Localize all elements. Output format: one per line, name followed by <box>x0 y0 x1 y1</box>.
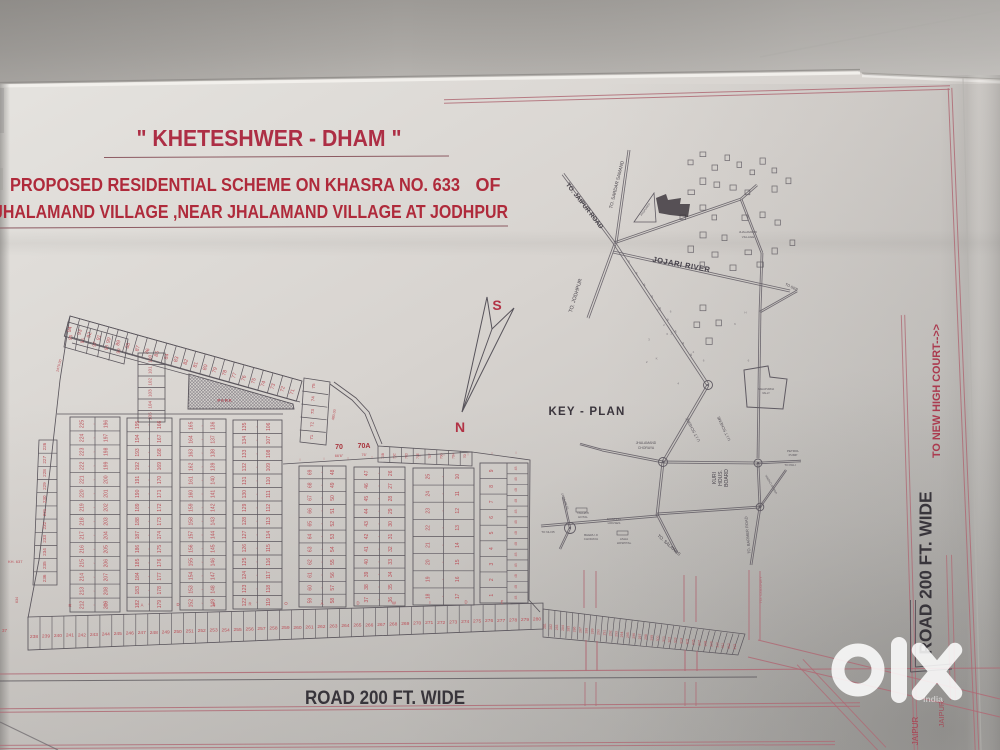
svg-text:230: 230 <box>42 495 47 503</box>
svg-text:27: 27 <box>388 483 394 489</box>
svg-text:295: 295 <box>626 632 630 638</box>
svg-text:60: 60 <box>308 585 314 591</box>
svg-text:16: 16 <box>455 576 461 582</box>
svg-text:18: 18 <box>426 593 432 599</box>
svg-text:282: 282 <box>549 624 553 630</box>
svg-text:119: 119 <box>266 598 272 606</box>
svg-text:301: 301 <box>662 636 666 642</box>
svg-text:PROPOSED RESIDENTIAL SCHEME ON: PROPOSED RESIDENTIAL SCHEME ON KHASRA NO… <box>10 175 460 195</box>
svg-text:256: 256 <box>246 627 254 633</box>
svg-text:286: 286 <box>573 626 577 632</box>
svg-text:" KHETESHWER - DHAM ": " KHETESHWER - DHAM " <box>137 125 402 151</box>
svg-text:JAIPUR: JAIPUR <box>911 717 920 746</box>
svg-text:70I: 70I <box>463 454 467 459</box>
svg-text:140: 140 <box>211 476 217 485</box>
svg-text:213: 213 <box>80 587 86 596</box>
svg-text:156: 156 <box>188 544 194 553</box>
svg-text:246: 246 <box>126 631 134 637</box>
svg-text:231: 231 <box>42 508 47 516</box>
svg-text:222: 222 <box>80 461 86 470</box>
svg-text:296: 296 <box>632 633 636 639</box>
svg-text:232: 232 <box>42 521 47 529</box>
svg-text:179: 179 <box>157 600 163 609</box>
svg-text:224: 224 <box>80 434 86 443</box>
svg-text:264: 264 <box>341 623 349 629</box>
svg-text:200: 200 <box>104 475 110 484</box>
svg-text:173: 173 <box>157 517 163 526</box>
svg-text:HOSPITAL: HOSPITAL <box>617 541 632 545</box>
svg-text:276: 276 <box>485 618 493 624</box>
svg-text:122: 122 <box>242 598 248 607</box>
svg-text:310: 310 <box>715 642 719 648</box>
svg-text:634: 634 <box>15 597 19 603</box>
svg-text:266: 266 <box>365 622 373 628</box>
svg-text:188: 188 <box>135 517 141 526</box>
svg-text:303: 303 <box>674 637 678 643</box>
svg-text:41: 41 <box>364 546 370 552</box>
svg-text:74: 74 <box>311 396 316 402</box>
svg-text:308: 308 <box>703 641 707 647</box>
svg-text:162: 162 <box>188 462 194 471</box>
svg-text:131: 131 <box>242 476 248 485</box>
svg-text:274: 274 <box>461 619 469 625</box>
svg-text:70F: 70F <box>428 453 432 459</box>
svg-text:TO PALI: TO PALI <box>784 463 795 467</box>
svg-text:48: 48 <box>330 469 336 475</box>
svg-text:76': 76' <box>362 453 367 457</box>
svg-text:64: 64 <box>308 534 314 540</box>
svg-text:248: 248 <box>150 630 158 636</box>
svg-text:4B: 4B <box>514 563 518 567</box>
svg-text:5: 5 <box>489 531 495 534</box>
svg-text:165: 165 <box>188 421 194 430</box>
svg-text:270: 270 <box>413 621 421 627</box>
svg-text:129: 129 <box>242 503 248 512</box>
svg-text:23: 23 <box>426 508 432 514</box>
svg-text:305: 305 <box>686 639 690 645</box>
svg-text:11: 11 <box>455 491 461 496</box>
svg-text:KH. 637: KH. 637 <box>8 559 23 564</box>
svg-text:59: 59 <box>308 598 314 604</box>
svg-text:50: 50 <box>330 495 336 501</box>
svg-text:68: 68 <box>308 482 314 488</box>
svg-text:227: 227 <box>42 456 47 464</box>
svg-text:236: 236 <box>42 574 47 582</box>
svg-text:13: 13 <box>455 525 461 531</box>
svg-text:S: S <box>492 297 501 313</box>
svg-text:166: 166 <box>157 421 163 430</box>
svg-text:A: A <box>141 602 144 607</box>
svg-text:37: 37 <box>2 628 8 633</box>
svg-text:174: 174 <box>157 531 163 540</box>
svg-text:ASHAPURNA: ASHAPURNA <box>758 387 774 391</box>
svg-text:176: 176 <box>157 558 163 567</box>
svg-text:4B: 4B <box>514 520 518 524</box>
svg-text:134: 134 <box>242 436 248 445</box>
svg-text:115: 115 <box>266 544 272 552</box>
svg-text:49: 49 <box>330 482 336 488</box>
svg-text:299: 299 <box>650 635 654 641</box>
svg-text:34: 34 <box>388 571 394 577</box>
svg-text:146: 146 <box>211 558 217 567</box>
svg-text:1: 1 <box>489 594 495 597</box>
svg-text:N: N <box>455 419 465 435</box>
svg-text:104: 104 <box>148 401 153 409</box>
svg-text:105: 105 <box>148 412 153 420</box>
svg-text:278: 278 <box>509 617 517 623</box>
svg-text:24: 24 <box>426 491 432 497</box>
svg-text:249: 249 <box>162 629 170 635</box>
svg-text:130: 130 <box>242 490 248 499</box>
svg-text:4: 4 <box>489 547 495 550</box>
svg-text:20: 20 <box>426 559 432 565</box>
svg-text:190: 190 <box>135 489 141 498</box>
svg-text:252: 252 <box>198 628 206 634</box>
svg-text:K: K <box>656 356 658 360</box>
svg-text:8: 8 <box>489 485 495 488</box>
svg-text:45: 45 <box>364 496 370 502</box>
svg-text:186: 186 <box>135 545 141 554</box>
svg-text:193: 193 <box>135 448 141 457</box>
svg-text:TO NEW HIGH COURT-->>: TO NEW HIGH COURT-->> <box>931 324 943 458</box>
svg-text:297: 297 <box>638 634 642 640</box>
svg-text:35: 35 <box>388 584 394 590</box>
svg-text:187: 187 <box>135 531 141 540</box>
svg-text:126: 126 <box>242 544 248 553</box>
svg-text:67: 67 <box>308 495 314 501</box>
svg-text:107: 107 <box>266 436 272 445</box>
svg-text:51: 51 <box>330 508 336 514</box>
svg-text:14: 14 <box>455 542 461 548</box>
svg-text:153: 153 <box>188 585 194 594</box>
svg-text:290: 290 <box>596 629 600 635</box>
svg-text:141: 141 <box>211 490 217 499</box>
svg-text:4B: 4B <box>514 499 518 503</box>
svg-text:43: 43 <box>364 521 370 527</box>
svg-text:47: 47 <box>364 470 370 476</box>
svg-text:W: W <box>392 600 396 605</box>
svg-text:BOARD: BOARD <box>724 469 730 487</box>
svg-text:292: 292 <box>608 630 612 636</box>
svg-text:70A: 70A <box>358 443 371 450</box>
svg-text:245: 245 <box>114 631 122 637</box>
svg-text:225: 225 <box>80 420 86 429</box>
svg-text:52: 52 <box>330 521 336 527</box>
svg-text:15: 15 <box>455 559 461 565</box>
svg-text:164: 164 <box>188 435 194 444</box>
svg-text:163: 163 <box>188 449 194 458</box>
svg-text:261: 261 <box>305 624 313 630</box>
svg-text:207: 207 <box>104 573 110 582</box>
svg-text:19: 19 <box>426 576 432 582</box>
svg-text:234: 234 <box>42 548 47 556</box>
svg-text:TO. COLONEY: TO. COLONEY <box>758 576 763 604</box>
svg-text:112: 112 <box>266 504 272 512</box>
svg-text:241: 241 <box>66 633 74 639</box>
svg-text:VILLAGE: VILLAGE <box>742 235 755 239</box>
svg-text:63: 63 <box>308 546 314 552</box>
svg-text:285: 285 <box>567 626 571 632</box>
svg-text:H: H <box>744 311 746 315</box>
svg-text:251: 251 <box>186 629 194 635</box>
svg-text:148: 148 <box>211 585 217 594</box>
svg-text:OF: OF <box>476 175 501 195</box>
svg-text:B: B <box>213 602 216 607</box>
svg-text:242: 242 <box>78 632 86 638</box>
svg-text:142: 142 <box>211 503 217 512</box>
svg-text:143: 143 <box>211 517 217 526</box>
svg-text:277: 277 <box>497 618 505 624</box>
svg-text:268: 268 <box>389 622 397 628</box>
svg-text:PARK: PARK <box>217 398 232 403</box>
svg-text:113: 113 <box>266 517 272 525</box>
svg-text:262: 262 <box>317 624 325 630</box>
svg-text:194: 194 <box>135 434 141 443</box>
svg-text:2: 2 <box>489 578 495 581</box>
svg-text:54: 54 <box>330 546 336 552</box>
svg-text:172: 172 <box>157 503 163 512</box>
svg-text:214: 214 <box>80 573 86 582</box>
svg-text:30: 30 <box>388 521 394 527</box>
svg-text:217: 217 <box>80 531 86 540</box>
svg-text:28: 28 <box>388 496 394 502</box>
svg-text:216: 216 <box>80 545 86 554</box>
svg-text:39: 39 <box>364 571 370 577</box>
svg-text:138: 138 <box>211 449 217 458</box>
svg-text:32: 32 <box>388 546 394 552</box>
svg-text:152: 152 <box>188 599 194 608</box>
svg-text:136: 136 <box>211 421 217 430</box>
svg-text:220: 220 <box>80 489 86 498</box>
svg-text:298: 298 <box>644 634 648 640</box>
svg-text:267: 267 <box>377 622 385 628</box>
svg-text:4B: 4B <box>514 596 518 600</box>
svg-text:118: 118 <box>266 585 272 593</box>
svg-text:159: 159 <box>188 503 194 512</box>
svg-text:TO NH 65: TO NH 65 <box>541 530 555 534</box>
svg-text:R: R <box>68 603 71 608</box>
svg-text:HOTAL: HOTAL <box>578 515 588 519</box>
svg-text:306: 306 <box>692 639 696 645</box>
svg-text:206: 206 <box>104 559 110 568</box>
svg-text:198: 198 <box>104 447 110 456</box>
svg-text:70D: 70D <box>404 452 408 459</box>
svg-text:144: 144 <box>211 531 217 540</box>
svg-text:204: 204 <box>104 531 110 540</box>
svg-text:293: 293 <box>614 631 618 637</box>
svg-text:235: 235 <box>42 561 47 569</box>
svg-text:103: 103 <box>148 389 153 397</box>
svg-text:178: 178 <box>157 586 163 595</box>
svg-text:154: 154 <box>188 572 194 581</box>
svg-text:42: 42 <box>364 534 370 540</box>
svg-text:JAIPUR: JAIPUR <box>937 700 946 727</box>
svg-text:226: 226 <box>42 442 47 450</box>
svg-text:D: D <box>176 602 179 607</box>
svg-text:189: 189 <box>135 503 141 512</box>
svg-text:66'6": 66'6" <box>335 454 344 458</box>
svg-text:37: 37 <box>364 597 370 603</box>
svg-text:4B: 4B <box>514 574 518 578</box>
svg-text:4B: 4B <box>514 477 518 481</box>
svg-text:29: 29 <box>388 508 394 514</box>
svg-text:259: 259 <box>281 625 289 631</box>
svg-text:25: 25 <box>426 474 432 480</box>
svg-text:3: 3 <box>489 562 495 565</box>
svg-text:4B: 4B <box>514 510 518 514</box>
svg-text:4B: 4B <box>514 585 518 589</box>
svg-text:PUMP: PUMP <box>789 453 798 457</box>
svg-text:243: 243 <box>90 632 98 638</box>
svg-text:116: 116 <box>266 558 272 566</box>
svg-text:265: 265 <box>353 623 361 629</box>
svg-text:4B: 4B <box>514 466 518 470</box>
svg-text:272: 272 <box>437 620 445 626</box>
svg-text:7: 7 <box>489 500 495 503</box>
svg-text:56: 56 <box>330 572 336 578</box>
svg-text:133: 133 <box>242 449 248 458</box>
svg-text:185: 185 <box>135 558 141 567</box>
svg-text:55: 55 <box>330 559 336 565</box>
svg-text:170: 170 <box>157 476 163 485</box>
svg-text:102: 102 <box>148 378 153 386</box>
svg-text:157: 157 <box>188 531 194 540</box>
svg-text:289: 289 <box>591 628 595 634</box>
svg-text:192: 192 <box>135 462 141 471</box>
svg-text:240: 240 <box>54 633 62 639</box>
svg-text:160: 160 <box>188 490 194 499</box>
svg-text:155: 155 <box>188 558 194 567</box>
svg-text:6: 6 <box>489 516 495 519</box>
svg-text:191: 191 <box>135 476 141 485</box>
svg-text:258: 258 <box>269 626 277 632</box>
svg-text:71: 71 <box>309 434 314 440</box>
svg-text:263: 263 <box>329 624 337 630</box>
svg-text:196: 196 <box>104 420 110 429</box>
svg-text:53: 53 <box>330 534 336 540</box>
svg-text:125: 125 <box>242 557 248 566</box>
svg-text:21: 21 <box>426 542 432 548</box>
svg-text:17: 17 <box>455 593 461 599</box>
svg-text:109: 109 <box>266 463 272 472</box>
svg-text:135: 135 <box>242 422 248 431</box>
svg-text:168: 168 <box>157 448 163 457</box>
svg-text:CHORAYA: CHORAYA <box>638 446 655 450</box>
svg-text:127: 127 <box>242 530 248 539</box>
svg-text:66: 66 <box>308 508 314 514</box>
svg-text:4B: 4B <box>514 553 518 557</box>
svg-text:4B: 4B <box>514 531 518 535</box>
svg-text:309: 309 <box>709 641 713 647</box>
svg-text:139: 139 <box>211 462 217 471</box>
svg-text:4B: 4B <box>514 542 518 546</box>
svg-text:311: 311 <box>721 643 725 649</box>
svg-text:145: 145 <box>211 544 217 553</box>
svg-text:D: D <box>356 601 359 606</box>
svg-text:205: 205 <box>104 545 110 554</box>
svg-text:302: 302 <box>668 637 672 643</box>
svg-text:228: 228 <box>42 469 47 477</box>
svg-text:271: 271 <box>425 620 433 626</box>
svg-text:221: 221 <box>80 475 86 484</box>
svg-text:233: 233 <box>42 535 47 543</box>
svg-text:65: 65 <box>308 521 314 527</box>
svg-text:70: 70 <box>335 444 343 451</box>
svg-text:108: 108 <box>266 449 272 458</box>
svg-text:257: 257 <box>257 626 265 632</box>
svg-text:169: 169 <box>157 462 163 471</box>
svg-text:147: 147 <box>211 572 217 581</box>
svg-text:269: 269 <box>401 621 409 627</box>
svg-text:VALLY: VALLY <box>762 391 770 395</box>
svg-text:183: 183 <box>135 586 141 595</box>
svg-text:294: 294 <box>620 632 624 638</box>
svg-text:61: 61 <box>308 572 314 578</box>
svg-text:229: 229 <box>42 482 47 490</box>
svg-text:218: 218 <box>80 517 86 526</box>
svg-text:73: 73 <box>310 409 315 415</box>
svg-text:250: 250 <box>174 629 182 635</box>
svg-text:KEY - PLAN: KEY - PLAN <box>549 406 626 418</box>
svg-text:117: 117 <box>266 571 272 579</box>
svg-text:I: I <box>429 600 430 605</box>
svg-text:260: 260 <box>293 625 301 631</box>
svg-text:202: 202 <box>104 503 110 512</box>
svg-text:9: 9 <box>489 469 495 472</box>
svg-text:CHORAYA: CHORAYA <box>584 537 598 541</box>
svg-text:JHALAMAND: JHALAMAND <box>636 441 657 445</box>
svg-text:313: 313 <box>733 644 737 650</box>
svg-text:212: 212 <box>80 601 86 610</box>
svg-text:312: 312 <box>727 643 731 649</box>
svg-text:300: 300 <box>656 635 660 641</box>
svg-text:12: 12 <box>455 508 461 514</box>
svg-text:279: 279 <box>521 617 529 623</box>
svg-text:JHALAMAND: JHALAMAND <box>739 230 758 234</box>
svg-text:304: 304 <box>680 638 684 644</box>
svg-text:57: 57 <box>330 585 336 591</box>
svg-text:273: 273 <box>449 619 457 625</box>
svg-text:ROAD 200 FT. WIDE: ROAD 200 FT. WIDE <box>916 492 936 655</box>
svg-text:110: 110 <box>266 477 272 485</box>
svg-text:201: 201 <box>104 489 110 498</box>
svg-text:161: 161 <box>188 476 194 485</box>
svg-text:291: 291 <box>602 630 606 636</box>
svg-text:254: 254 <box>222 627 230 633</box>
svg-text:219: 219 <box>80 503 86 512</box>
svg-text:106: 106 <box>266 422 272 431</box>
svg-text:244: 244 <box>102 632 110 638</box>
svg-text:255: 255 <box>234 627 242 633</box>
svg-text:275: 275 <box>473 619 481 625</box>
svg-text:72: 72 <box>310 421 315 427</box>
svg-text:india: india <box>923 694 943 704</box>
svg-text:101: 101 <box>148 366 153 374</box>
svg-text:A: A <box>321 601 324 606</box>
svg-text:284: 284 <box>561 625 565 631</box>
svg-text:281: 281 <box>543 623 547 629</box>
svg-text:208: 208 <box>104 587 110 596</box>
svg-text:69: 69 <box>308 469 314 475</box>
svg-text:31: 31 <box>388 534 394 540</box>
svg-text:E: E <box>501 599 504 604</box>
svg-text:132: 132 <box>242 463 248 472</box>
svg-text:22: 22 <box>426 525 432 531</box>
svg-text:307: 307 <box>697 640 701 646</box>
svg-text:58: 58 <box>330 598 336 604</box>
svg-text:40: 40 <box>364 559 370 565</box>
svg-text:184: 184 <box>135 572 141 581</box>
